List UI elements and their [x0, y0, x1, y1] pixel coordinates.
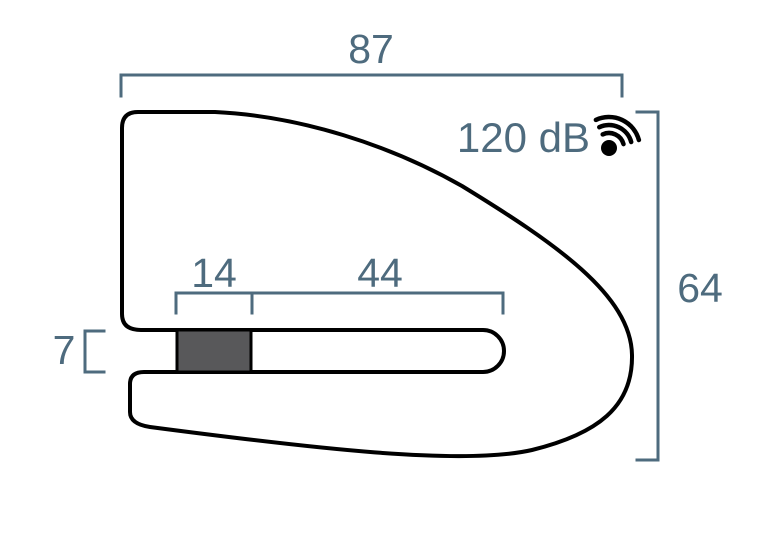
- lock-diagram-svg: 87 64 14 44 7 120 dB: [0, 0, 758, 538]
- sound-source-dot: [601, 140, 617, 156]
- dimension-height-bracket: [637, 112, 658, 460]
- dimension-width-label: 87: [348, 26, 394, 72]
- dimension-height-label: 64: [677, 265, 723, 311]
- dimension-width-bracket: [121, 75, 622, 96]
- alarm-db-label: 120 dB: [457, 114, 590, 161]
- dimension-slot-length-label: 44: [357, 250, 403, 296]
- dimension-pin-width-label: 14: [191, 250, 237, 296]
- disc-lock-dimension-diagram: 87 64 14 44 7 120 dB: [0, 0, 758, 538]
- dimension-gap-label: 7: [53, 327, 76, 373]
- dimension-gap-bracket: [85, 331, 104, 372]
- lock-pin: [177, 330, 251, 372]
- sound-waves-icon: [596, 117, 639, 156]
